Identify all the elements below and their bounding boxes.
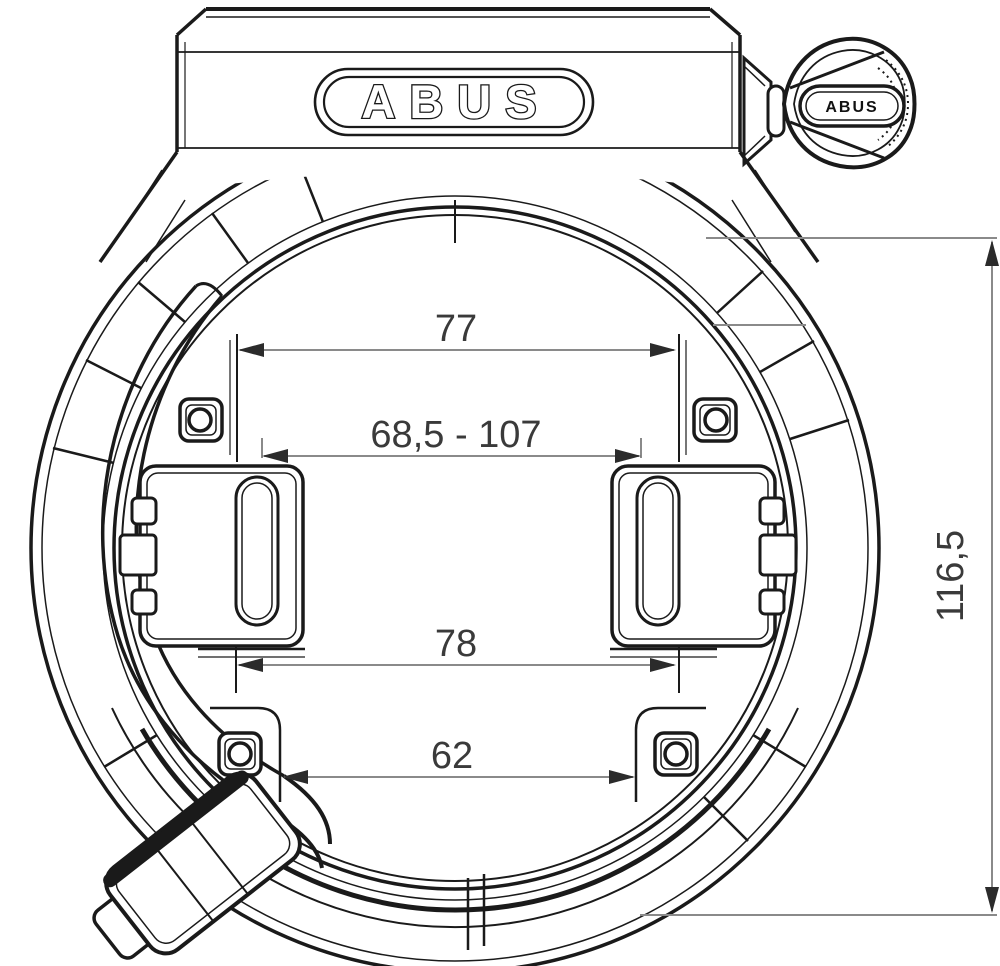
release-lever [75, 766, 330, 966]
plate-clip [132, 590, 156, 614]
arrowhead-left [237, 658, 263, 672]
dim-clamp-width-range: 68,5 - 107 [262, 414, 641, 463]
plate-clip [760, 498, 784, 524]
arrowhead-right [650, 658, 676, 672]
key-badge-text: ABUS [825, 99, 878, 116]
hatch-tick [212, 213, 248, 263]
key-assembly: ABUS [744, 39, 915, 167]
arrowhead-right [650, 343, 676, 357]
left-mounting-plate [120, 466, 305, 657]
dim-lower-inner-width: 62 [282, 735, 635, 784]
bolt-hole-top-right [694, 399, 736, 441]
frame-lock-technical-drawing: ABUS ABUS [0, 0, 1000, 966]
hatch-tick [138, 282, 185, 322]
arrowhead-left [262, 449, 288, 463]
dimension-label: 62 [431, 735, 473, 777]
logo-text: ABUS [361, 75, 550, 128]
arrowhead-left [238, 343, 264, 357]
dimension-label: 68,5 - 107 [370, 414, 541, 456]
plate-latch [120, 535, 156, 575]
plate-latch [760, 535, 796, 575]
arrowhead-right [609, 770, 635, 784]
arrowhead-right [615, 449, 641, 463]
arrowhead-up [985, 240, 999, 266]
hatch-tick [717, 271, 763, 313]
hatch-tick [760, 341, 814, 372]
plate-clip [132, 498, 156, 524]
dimension-label: 77 [435, 308, 477, 350]
right-mounting-plate [610, 466, 796, 657]
arrowhead-down [985, 887, 999, 913]
dimension-label: 116,5 [930, 530, 972, 622]
dimension-label: 78 [435, 623, 477, 665]
bolt-hole-bottom-right [655, 733, 697, 775]
plate-clip [760, 590, 784, 614]
bolt-hole-top-left [180, 399, 222, 441]
technical-drawing-canvas: ABUS ABUS [0, 0, 1000, 966]
hatch-tick [790, 420, 849, 439]
flare-hatch [122, 170, 162, 232]
dim-upper-inner-width: 77 [238, 308, 676, 357]
flare-hatch [755, 170, 795, 232]
bolt-hole-bottom-left [219, 733, 261, 775]
hatch-tick [53, 448, 114, 463]
key-collar [768, 86, 784, 136]
blade-top-cap [196, 284, 222, 296]
abus-logo: ABUS [315, 69, 593, 135]
